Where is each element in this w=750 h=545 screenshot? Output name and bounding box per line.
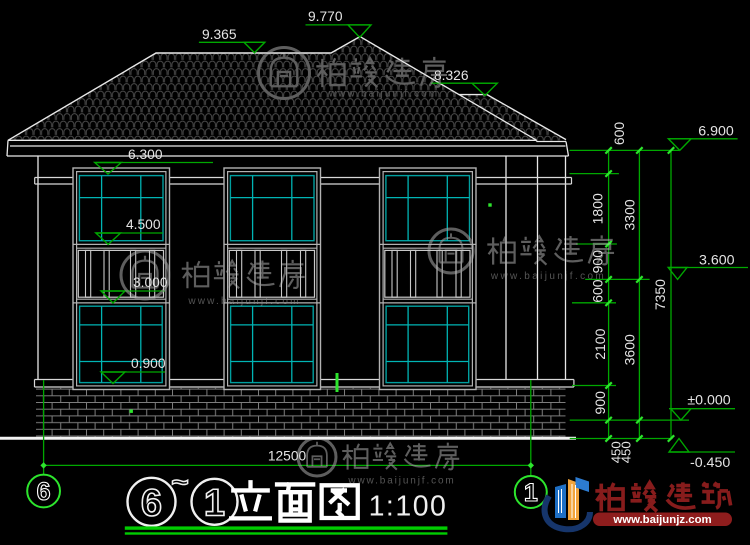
svg-text:www.baijunjz.com: www.baijunjz.com bbox=[612, 514, 711, 526]
svg-text:-0.450: -0.450 bbox=[690, 455, 730, 471]
svg-text:6: 6 bbox=[141, 483, 162, 525]
svg-text:~: ~ bbox=[171, 466, 189, 499]
svg-text:1:100: 1:100 bbox=[369, 491, 448, 523]
svg-text:9.365: 9.365 bbox=[202, 27, 237, 42]
svg-text:9.770: 9.770 bbox=[308, 9, 343, 24]
svg-text:450: 450 bbox=[619, 441, 634, 463]
svg-text:1: 1 bbox=[524, 479, 538, 507]
svg-text:4.500: 4.500 bbox=[126, 217, 161, 232]
svg-text:900: 900 bbox=[592, 391, 608, 415]
svg-text:www.baijunjf.com: www.baijunjf.com bbox=[347, 476, 455, 487]
svg-text:6.300: 6.300 bbox=[128, 147, 163, 162]
svg-text:www.baijunjf.com: www.baijunjf.com bbox=[328, 89, 439, 100]
svg-text:3600: 3600 bbox=[622, 334, 638, 365]
svg-text:www.baijunjf.com: www.baijunjf.com bbox=[490, 271, 606, 282]
svg-text:www.baijunjf.com: www.baijunjf.com bbox=[187, 296, 300, 307]
svg-text:1: 1 bbox=[204, 483, 225, 525]
svg-text:0.900: 0.900 bbox=[131, 356, 166, 371]
svg-text:6.900: 6.900 bbox=[698, 124, 734, 140]
svg-text:3300: 3300 bbox=[622, 199, 638, 230]
svg-text:7350: 7350 bbox=[652, 279, 668, 310]
svg-text:3.600: 3.600 bbox=[699, 253, 735, 269]
svg-text:600: 600 bbox=[611, 122, 627, 146]
svg-text:6: 6 bbox=[37, 478, 51, 506]
svg-text:12500: 12500 bbox=[268, 449, 307, 464]
svg-text:±0.000: ±0.000 bbox=[687, 393, 730, 409]
svg-text:1800: 1800 bbox=[590, 193, 606, 224]
svg-text:600: 600 bbox=[590, 279, 606, 303]
svg-text:2100: 2100 bbox=[592, 328, 608, 359]
